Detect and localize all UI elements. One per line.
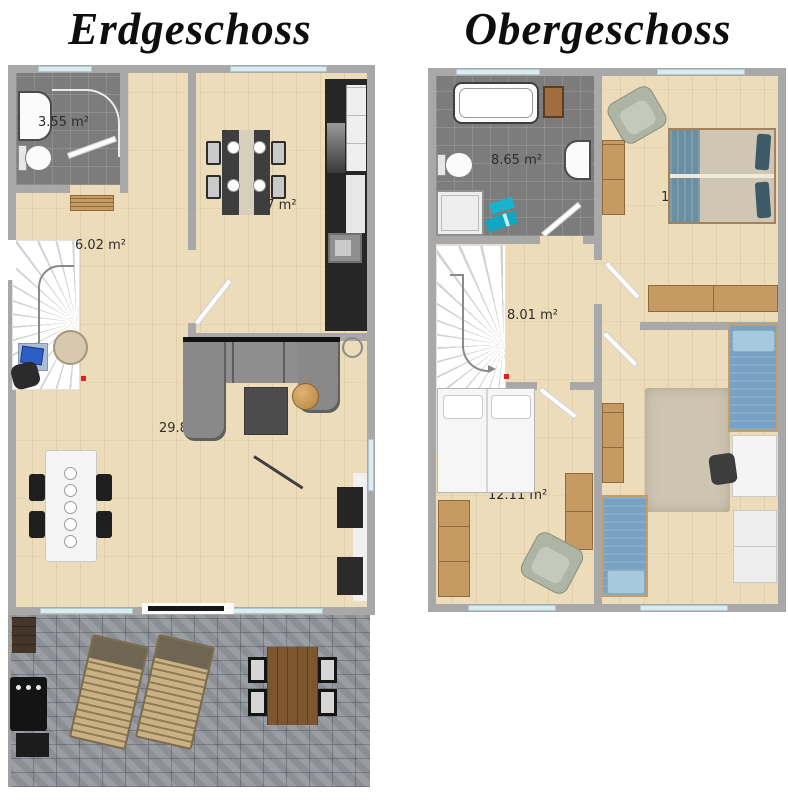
dresser: [565, 473, 593, 550]
black-chair: [29, 474, 45, 501]
stove: [327, 123, 345, 173]
kitchen-cabinet: [346, 175, 365, 233]
window: [657, 69, 745, 75]
bed-divider: [486, 389, 488, 492]
window: [38, 66, 92, 72]
wall: [594, 304, 602, 604]
ground-floor-plan: 3.55 m² 6.02 m² 27 m²: [8, 65, 375, 787]
sliding-door: [148, 606, 224, 611]
wall: [428, 236, 540, 244]
plate: [64, 501, 77, 514]
side-table: [292, 383, 319, 410]
floor-lamp-icon: [342, 337, 363, 358]
place-setting: [253, 179, 266, 192]
pillow: [443, 395, 483, 419]
landing-area-label: 8.01 m²: [507, 308, 558, 323]
dresser-white: [733, 510, 777, 583]
outdoor-chair: [248, 689, 267, 716]
desk: [732, 435, 777, 497]
fridge: [346, 85, 366, 171]
plate: [64, 484, 77, 497]
window: [456, 69, 540, 75]
pillow: [755, 134, 771, 171]
window: [468, 605, 556, 611]
grill-knobs-icon: [16, 685, 21, 690]
page-title-ground-floor: Erdgeschoss: [0, 0, 380, 60]
double-bed: [668, 128, 776, 224]
entry-door-opening: [8, 240, 16, 280]
place-setting: [227, 179, 240, 192]
bench: [70, 195, 114, 211]
wardrobe: [602, 140, 625, 215]
tv-unit: [337, 557, 363, 595]
grill-tray: [16, 733, 49, 757]
wall: [120, 65, 128, 193]
bathroom-area-label: 3.55 m²: [38, 115, 89, 130]
round-table: [53, 330, 88, 365]
bed-blanket: [670, 178, 700, 222]
outdoor-table: [267, 647, 318, 725]
pillow: [755, 182, 771, 219]
sink-icon: [564, 140, 591, 180]
window: [640, 605, 728, 611]
coffee-table: [244, 387, 288, 435]
bed-divider: [670, 174, 774, 178]
toilet-icon: [25, 145, 52, 171]
outdoor-chair: [248, 657, 267, 683]
plate: [64, 535, 77, 548]
dining-chair: [206, 141, 221, 165]
sink-basin: [335, 240, 351, 256]
black-chair: [96, 474, 112, 501]
wall: [570, 382, 602, 390]
wall: [188, 73, 196, 250]
rug: [645, 388, 730, 512]
toilet-icon: [445, 152, 473, 178]
double-bed-white: [437, 388, 535, 493]
plate: [64, 518, 77, 531]
bath-cabinet: [543, 86, 564, 118]
bathroom-area-label: 8.65 m²: [491, 153, 542, 168]
floor-plan-canvas: Erdgeschoss Obergeschoss 3.55 m²: [0, 0, 788, 800]
sofa-left-arm: [183, 337, 226, 441]
outdoor-chair: [318, 689, 337, 716]
black-chair: [96, 511, 112, 538]
pillow: [491, 395, 531, 419]
wall: [778, 68, 786, 612]
desk-chair: [708, 452, 738, 485]
pillow: [607, 570, 645, 594]
plate: [64, 467, 77, 480]
shelf: [602, 403, 624, 483]
red-marker: [504, 374, 509, 379]
dining-chair: [206, 175, 221, 199]
bathtub: [453, 82, 539, 124]
outdoor-shelf: [12, 617, 36, 653]
window: [230, 66, 327, 72]
shower-tray: [441, 195, 479, 231]
shower: [436, 190, 484, 236]
wall: [428, 68, 436, 612]
window: [368, 439, 374, 491]
window: [40, 608, 133, 614]
place-setting: [227, 141, 240, 154]
dining-chair: [271, 175, 286, 199]
page-title-upper-floor: Obergeschoss: [408, 0, 788, 60]
window: [227, 608, 323, 614]
tv-unit: [337, 487, 363, 528]
sideboard: [648, 285, 778, 312]
pillow: [732, 330, 775, 352]
upper-floor-plan: 8.65 m² 8.01 m² 1 12.11 m²: [428, 68, 786, 615]
place-setting: [253, 141, 266, 154]
dining-chair: [271, 141, 286, 165]
wardrobe: [438, 500, 470, 597]
table-runner: [239, 130, 254, 215]
outdoor-chair: [318, 657, 337, 683]
bathtub-basin: [459, 88, 533, 118]
stair-arrow-head-icon: [488, 365, 496, 373]
red-marker: [81, 376, 86, 381]
wall: [8, 185, 70, 193]
stair-arrow-line: [462, 274, 464, 332]
black-chair: [29, 511, 45, 538]
bed-blanket: [670, 130, 700, 174]
hallway-area-label: 6.02 m²: [75, 238, 126, 253]
wall: [594, 68, 602, 260]
